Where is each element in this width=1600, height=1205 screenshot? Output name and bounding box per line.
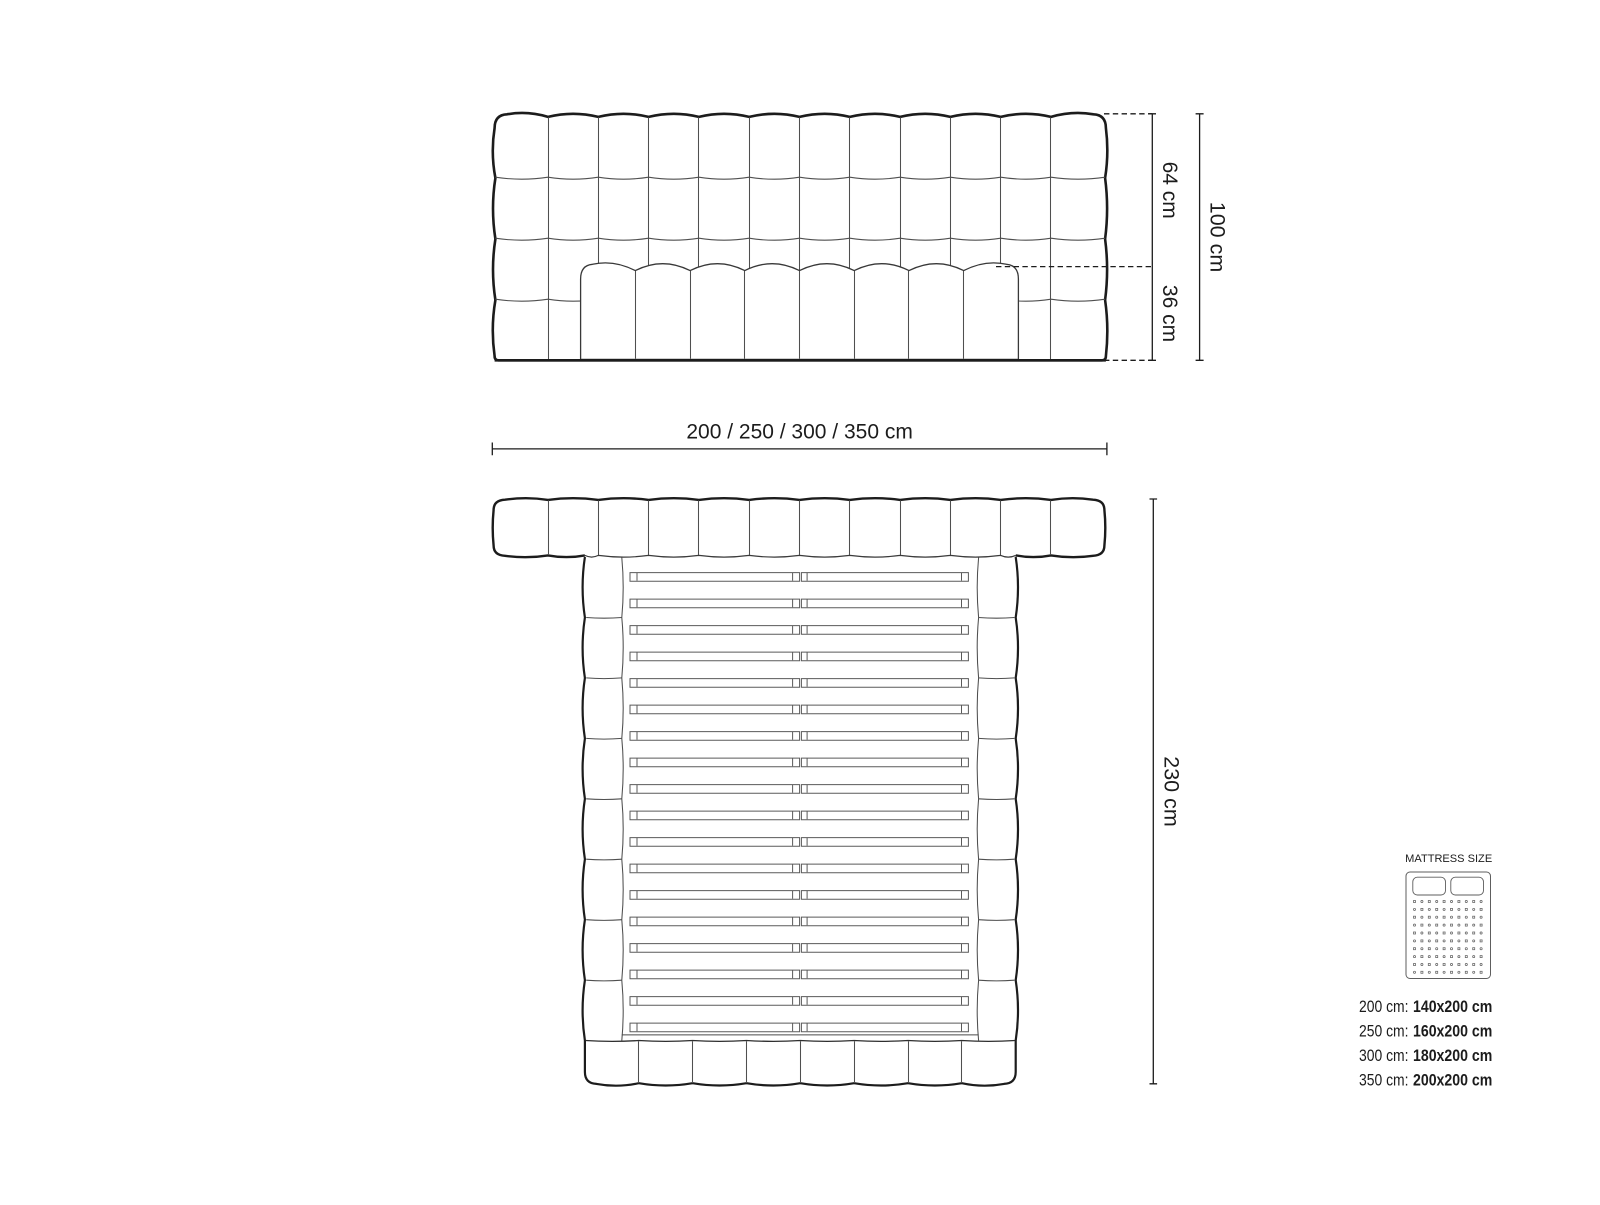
svg-text:350 cm:: 350 cm:: [1359, 1071, 1409, 1090]
svg-text:100 cm: 100 cm: [1206, 202, 1229, 273]
svg-text:140x200 cm: 140x200 cm: [1413, 997, 1492, 1016]
svg-text:160x200 cm: 160x200 cm: [1413, 1022, 1492, 1041]
svg-text:180x200 cm: 180x200 cm: [1413, 1046, 1492, 1065]
svg-text:200 cm:: 200 cm:: [1359, 997, 1409, 1016]
svg-text:MATTRESS SIZE: MATTRESS SIZE: [1405, 853, 1492, 865]
svg-text:36 cm: 36 cm: [1158, 285, 1181, 342]
svg-text:250 cm:: 250 cm:: [1359, 1022, 1409, 1041]
svg-text:200 / 250 / 300 / 350 cm: 200 / 250 / 300 / 350 cm: [686, 421, 913, 444]
svg-text:300 cm:: 300 cm:: [1359, 1046, 1409, 1065]
svg-text:230 cm: 230 cm: [1159, 756, 1182, 827]
svg-text:64 cm: 64 cm: [1158, 162, 1181, 219]
svg-text:200x200 cm: 200x200 cm: [1413, 1071, 1492, 1090]
